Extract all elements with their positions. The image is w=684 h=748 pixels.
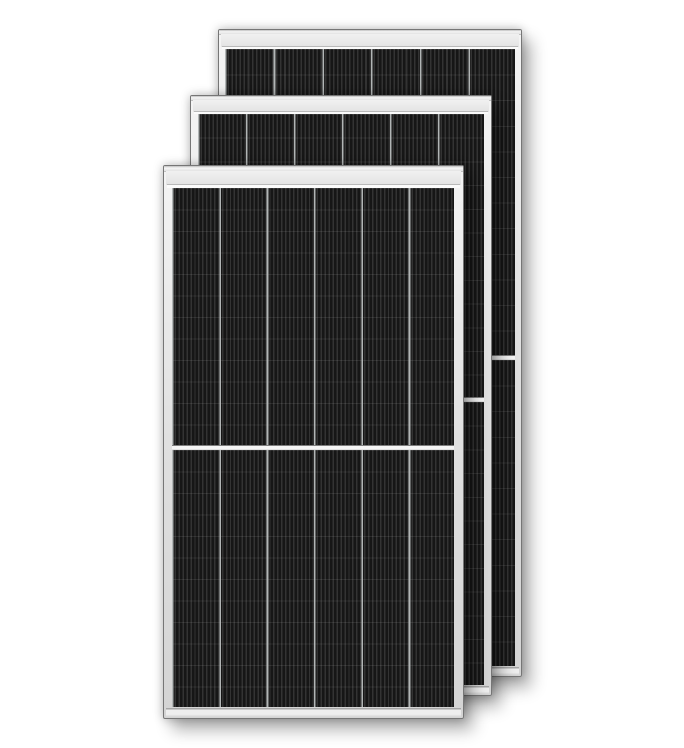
cell-grid xyxy=(172,188,454,707)
cell-half-top xyxy=(172,188,454,445)
frame-top-bar xyxy=(166,171,461,185)
solar-panel-front xyxy=(163,165,464,719)
frame-top-bar xyxy=(221,34,519,47)
frame-top-bar xyxy=(193,100,489,112)
cell-half-bottom xyxy=(172,450,454,707)
product-image-solar-panels xyxy=(0,0,684,748)
frame-bottom-bar xyxy=(166,708,461,717)
